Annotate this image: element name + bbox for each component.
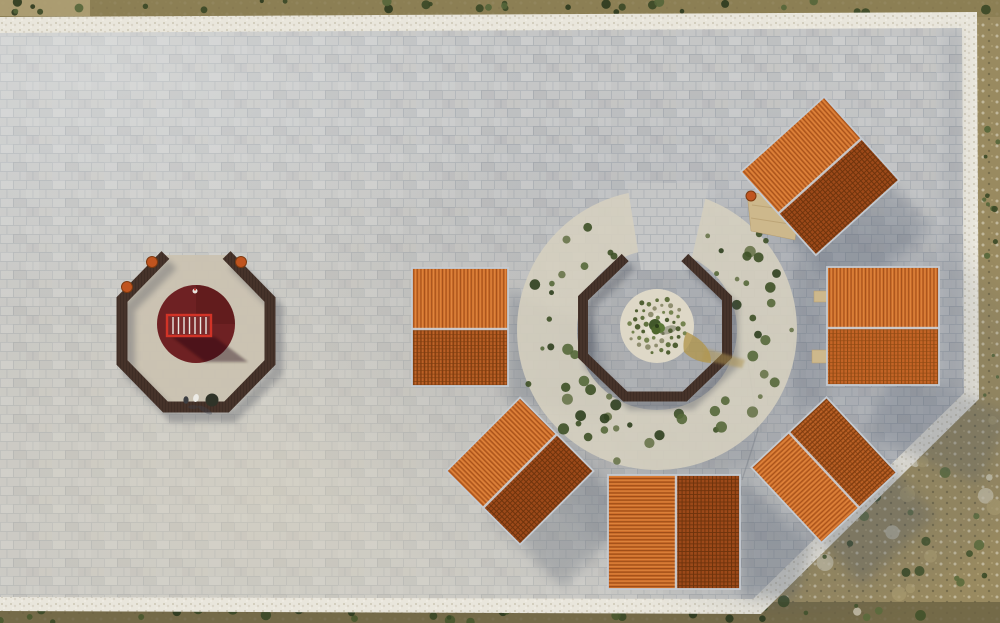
plant: [641, 330, 645, 334]
bush: [863, 614, 871, 622]
plant: [648, 312, 654, 318]
plant: [666, 350, 670, 354]
person-shadow: [188, 405, 198, 409]
bush: [915, 610, 926, 621]
shrub: [742, 252, 751, 261]
shrub: [610, 399, 621, 410]
shrub: [721, 396, 730, 405]
shrub: [584, 433, 593, 442]
shrub: [710, 406, 720, 416]
bush: [201, 6, 208, 13]
roof-dark-plane: [827, 328, 939, 385]
shrub: [789, 328, 794, 333]
shrub: [719, 248, 724, 253]
bush: [982, 573, 988, 579]
shrub: [563, 236, 571, 244]
bush: [476, 4, 484, 12]
plant: [659, 348, 663, 352]
shrub: [562, 394, 573, 405]
plant: [666, 342, 671, 347]
bush: [138, 614, 144, 620]
shrub: [525, 381, 531, 387]
plant: [644, 322, 649, 327]
plant: [670, 336, 674, 340]
shrub: [760, 335, 770, 345]
shrub: [747, 351, 758, 362]
roof-light-plane: [412, 268, 508, 329]
shrub: [585, 384, 596, 395]
shrub: [758, 394, 763, 399]
bush: [982, 198, 986, 202]
plant: [645, 344, 651, 350]
shrub: [547, 316, 552, 321]
shrub: [760, 370, 769, 379]
plant: [637, 336, 641, 340]
roof-ridge: [412, 328, 508, 330]
shrub: [601, 426, 609, 434]
shrub: [654, 430, 664, 440]
shrub: [743, 280, 749, 286]
play-octagon: [122, 255, 278, 416]
shrub: [576, 421, 582, 427]
plant: [647, 302, 652, 307]
plant: [660, 304, 663, 307]
bush: [984, 126, 991, 133]
shrub: [613, 425, 619, 431]
bush: [430, 612, 438, 620]
plant: [655, 298, 659, 302]
plant: [677, 335, 681, 339]
shrub: [561, 383, 570, 392]
bush: [143, 4, 148, 9]
bush: [501, 3, 507, 9]
plant: [654, 344, 658, 348]
plant: [635, 309, 638, 312]
bush: [759, 615, 766, 622]
shrub: [763, 238, 769, 244]
bush: [37, 9, 43, 15]
bush: [447, 615, 452, 620]
plant: [677, 308, 681, 312]
shrub: [581, 262, 589, 270]
pavilion-roof-south: [608, 475, 740, 589]
bush: [875, 607, 883, 615]
orange-barrel: [147, 257, 158, 268]
plant: [642, 309, 645, 312]
roof-ridge: [675, 475, 677, 589]
plant: [627, 321, 632, 326]
shrub: [540, 346, 544, 350]
plant: [673, 343, 679, 349]
plant: [665, 297, 670, 302]
shrub: [575, 410, 586, 421]
bush: [984, 155, 988, 159]
shrub: [558, 423, 569, 434]
bush: [13, 9, 18, 14]
roof-light-plane: [608, 475, 676, 589]
bush: [721, 0, 729, 8]
shrub: [677, 414, 688, 425]
plant: [639, 300, 644, 305]
bush: [993, 239, 998, 244]
bush: [956, 578, 964, 586]
bush: [27, 614, 33, 620]
shrub: [767, 299, 776, 308]
shrub: [558, 271, 565, 278]
plant: [676, 315, 680, 319]
roof-light-plane: [827, 267, 939, 328]
shrub: [714, 271, 719, 276]
pavilion-roof-west: [412, 268, 508, 386]
shrub: [600, 414, 610, 424]
roof-ridge: [827, 327, 939, 329]
plant: [637, 343, 641, 347]
rock-patch: [853, 608, 861, 616]
shrub: [579, 376, 590, 387]
shrub: [627, 422, 632, 427]
shrub: [613, 457, 621, 465]
shrub: [549, 290, 554, 295]
shrub: [749, 315, 756, 322]
plant: [644, 338, 649, 343]
pavilion-roof-east: [827, 267, 939, 385]
bush: [680, 9, 685, 14]
plant: [651, 351, 654, 354]
scene-canvas: Aerial drone view of a stone-paved plaza…: [0, 0, 1000, 623]
bush: [981, 5, 991, 15]
bush: [565, 4, 571, 10]
roof-dark-plane: [412, 329, 508, 386]
orange-barrel: [236, 257, 247, 268]
shrub: [583, 223, 592, 232]
bush: [984, 253, 990, 259]
shrub: [747, 406, 758, 417]
plant: [672, 321, 675, 324]
shrub: [770, 377, 780, 387]
plant: [665, 318, 669, 322]
plant: [640, 316, 644, 320]
orange-barrel: [122, 282, 133, 293]
orange-barrel: [746, 191, 756, 201]
shrub: [772, 269, 781, 278]
plant: [659, 338, 664, 343]
plant: [635, 324, 641, 330]
shrub: [530, 279, 541, 290]
pavilion-east-west-shade: [793, 260, 827, 410]
shrub: [705, 234, 710, 239]
plant: [662, 311, 665, 314]
shrub: [547, 343, 554, 350]
plant: [633, 317, 637, 321]
bush: [30, 4, 35, 9]
bush: [992, 206, 998, 212]
bush: [781, 5, 787, 11]
bush: [75, 4, 84, 13]
roof-dark-plane: [676, 475, 740, 589]
plant: [632, 331, 635, 334]
bush: [619, 4, 626, 11]
shrub: [608, 250, 614, 256]
shrub: [644, 438, 654, 448]
bush: [485, 4, 492, 11]
shrub: [562, 344, 573, 355]
bush: [985, 193, 990, 198]
flag-marker-top: [194, 288, 196, 290]
plant: [652, 306, 656, 310]
aerial-photo: Aerial drone view of a stone-paved plaza…: [0, 0, 1000, 623]
play-railing: [167, 315, 211, 336]
edge-shade: [941, 30, 962, 390]
bush: [725, 615, 733, 623]
shrub: [735, 277, 740, 282]
bush: [422, 0, 431, 9]
shrub: [765, 282, 776, 293]
shrub: [206, 394, 219, 407]
shrub: [549, 281, 555, 287]
person: [183, 396, 188, 404]
bush: [986, 202, 990, 206]
shrub: [754, 252, 764, 262]
plant: [681, 321, 686, 326]
shrub: [606, 394, 612, 400]
plant: [652, 336, 656, 340]
plant: [630, 337, 633, 340]
plant: [668, 303, 673, 308]
shrub: [716, 421, 727, 432]
plant: [669, 310, 674, 315]
shrub: [754, 331, 762, 339]
